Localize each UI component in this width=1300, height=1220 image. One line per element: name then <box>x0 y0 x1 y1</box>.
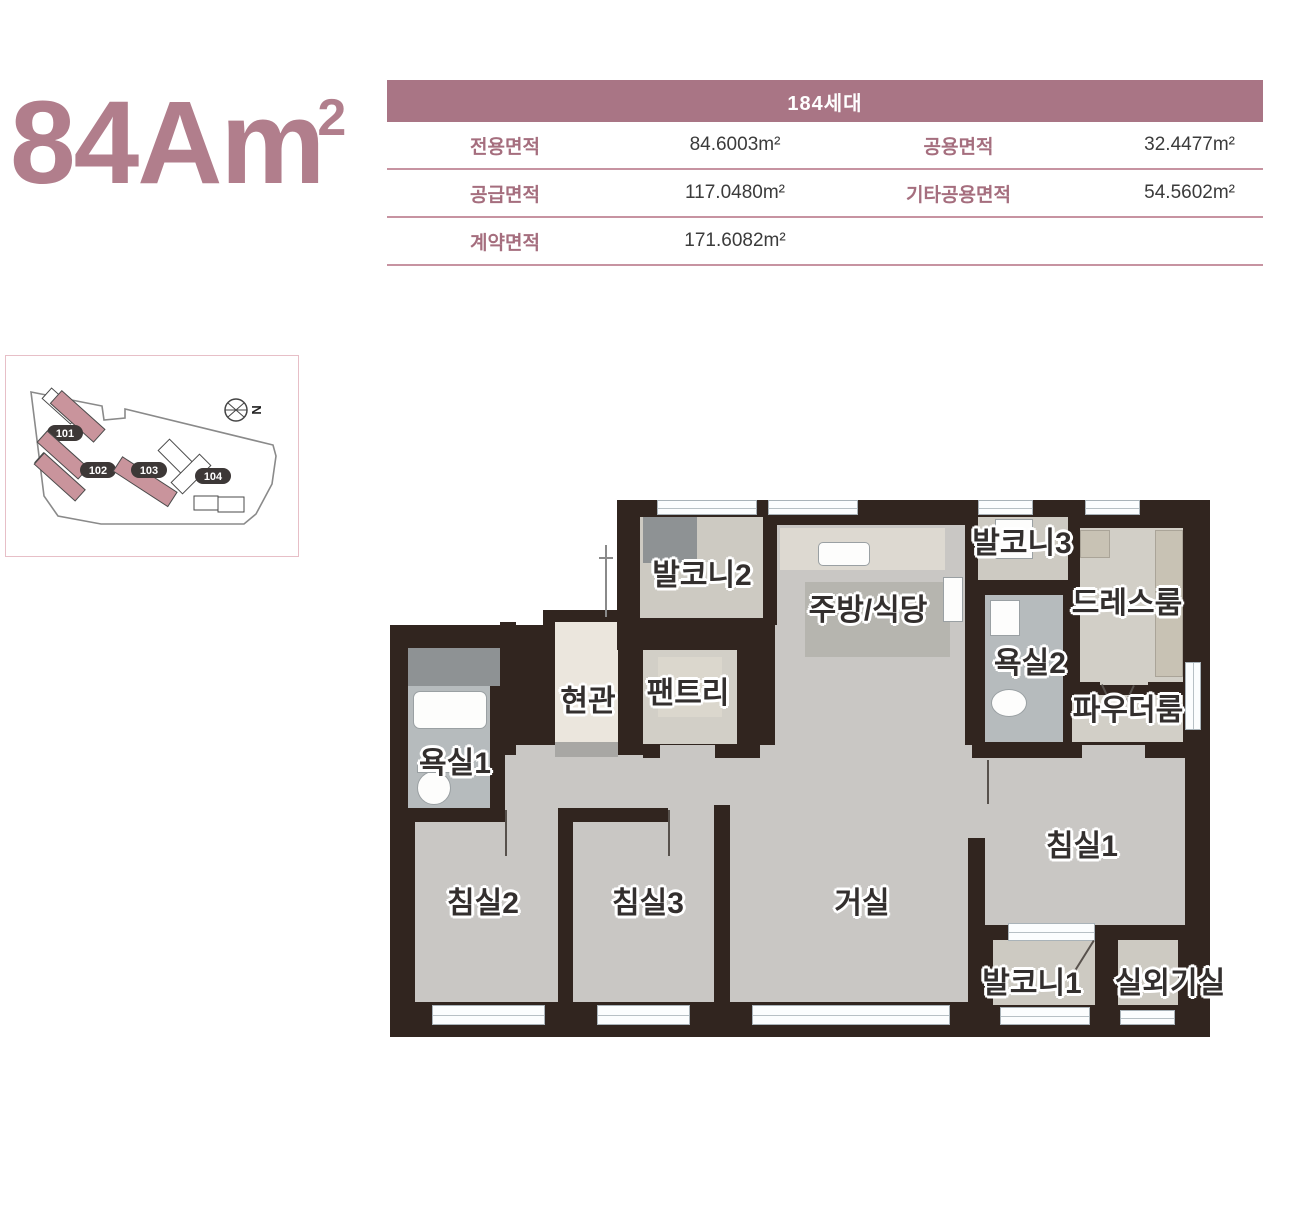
cell-value: 84.6003m² <box>623 134 847 156</box>
wall-segment <box>390 808 505 822</box>
area-table: 184세대 전용면적 84.6003m² 공용면적 32.4477m² 공급면적… <box>387 80 1263 266</box>
window <box>1008 923 1095 941</box>
room-label-pantry: 팬트리 <box>647 668 730 712</box>
room-label-bedroom3: 침실3 <box>612 878 684 922</box>
table-row: 계약면적 171.6082m² <box>387 218 1263 266</box>
cell-value: 54.5602m² <box>1070 182 1263 204</box>
room-label-bathroom1: 욕실1 <box>419 738 491 782</box>
building-102: 102 <box>34 431 116 501</box>
table-row: 공급면적 117.0480m² 기타공용면적 54.5602m² <box>387 170 1263 218</box>
wall-segment <box>763 500 777 625</box>
antenna-tick <box>599 557 613 559</box>
room-label-outdoor-unit: 실외기실 <box>1115 958 1225 1002</box>
room-label-balcony2: 발코니2 <box>652 550 752 594</box>
window <box>597 1005 690 1025</box>
refrigerator <box>943 577 963 622</box>
cell-label: 공용면적 <box>847 132 1070 159</box>
window <box>657 500 757 515</box>
window <box>1085 500 1140 515</box>
window <box>1120 1010 1175 1025</box>
site-map: 101 102 103 10 <box>5 355 299 557</box>
room-label-kitchen: 주방/식당 <box>809 585 928 629</box>
room-label-balcony3: 발코니3 <box>972 518 1072 562</box>
site-map-drawing: 101 102 103 10 <box>6 356 298 556</box>
door-leaf <box>505 810 507 856</box>
room-label-living: 거실 <box>834 878 889 922</box>
room-label-powderroom: 파우더룸 <box>1073 685 1183 729</box>
room-label-bedroom2: 침실2 <box>447 878 519 922</box>
entrance-mat <box>555 742 618 757</box>
room-label-bathroom2: 욕실2 <box>994 638 1066 682</box>
wall-segment <box>1145 742 1185 758</box>
building-103-label: 103 <box>140 465 158 477</box>
wall-segment <box>558 808 668 822</box>
wall-segment <box>972 742 1082 758</box>
wall-segment <box>618 622 643 755</box>
page-title-text: 84Am <box>10 77 323 209</box>
cell-value: 117.0480m² <box>623 182 847 204</box>
wall-segment <box>985 925 1008 940</box>
floor-plan: 발코니2 주방/식당 발코니3 드레스룸 현관 팬트리 욕실2 파우더룸 욕실1… <box>385 497 1215 1042</box>
door-leaf <box>668 810 670 856</box>
window <box>1000 1007 1090 1025</box>
antenna-line <box>605 545 607 617</box>
sink-bath2 <box>990 600 1020 636</box>
building-102-label: 102 <box>89 465 107 477</box>
compass-n-label: N <box>249 405 264 414</box>
cell-label: 기타공용면적 <box>847 180 1070 207</box>
room-label-dressroom: 드레스룸 <box>1072 578 1182 622</box>
area-table-header: 184세대 <box>387 80 1263 122</box>
room-label-bedroom1: 침실1 <box>1046 821 1118 865</box>
cell-label: 공급면적 <box>387 180 623 207</box>
page: 84Am2 184세대 전용면적 84.6003m² 공용면적 32.4477m… <box>0 0 1300 1220</box>
room-label-entrance: 현관 <box>560 676 615 720</box>
wall-segment <box>558 808 573 1002</box>
kitchen-sink <box>818 542 870 566</box>
window <box>432 1005 545 1025</box>
building-104-label: 104 <box>204 471 223 483</box>
wall-segment <box>715 744 760 758</box>
building-101-label: 101 <box>56 428 74 440</box>
wall-segment <box>490 686 505 819</box>
wall-segment <box>737 650 757 755</box>
wall-segment <box>714 805 730 1002</box>
room-label-balcony1: 발코니1 <box>982 958 1082 1002</box>
window <box>1185 662 1201 730</box>
table-row: 전용면적 84.6003m² 공용면적 32.4477m² <box>387 122 1263 170</box>
building-103: 103 <box>113 457 177 507</box>
toilet-bath2 <box>991 689 1027 717</box>
ac-unit-bathroom1 <box>408 648 500 686</box>
cell-label: 전용면적 <box>387 132 623 159</box>
window <box>768 500 858 515</box>
bathtub <box>413 691 487 729</box>
wall-segment <box>1095 925 1185 940</box>
door-leaf <box>987 760 989 804</box>
page-title-sup: 2 <box>317 89 344 147</box>
compass-icon: N <box>225 399 264 421</box>
wall-segment <box>972 592 985 758</box>
wall-segment <box>643 744 660 758</box>
cell-value: 171.6082m² <box>623 230 847 252</box>
window <box>978 500 1033 515</box>
building-101: 101 <box>42 388 105 442</box>
cell-value: 32.4477m² <box>1070 134 1263 156</box>
window <box>752 1005 950 1025</box>
cell-label: 계약면적 <box>387 228 623 255</box>
dressroom-cabinet <box>1080 530 1110 558</box>
page-title: 84Am2 <box>10 76 350 212</box>
